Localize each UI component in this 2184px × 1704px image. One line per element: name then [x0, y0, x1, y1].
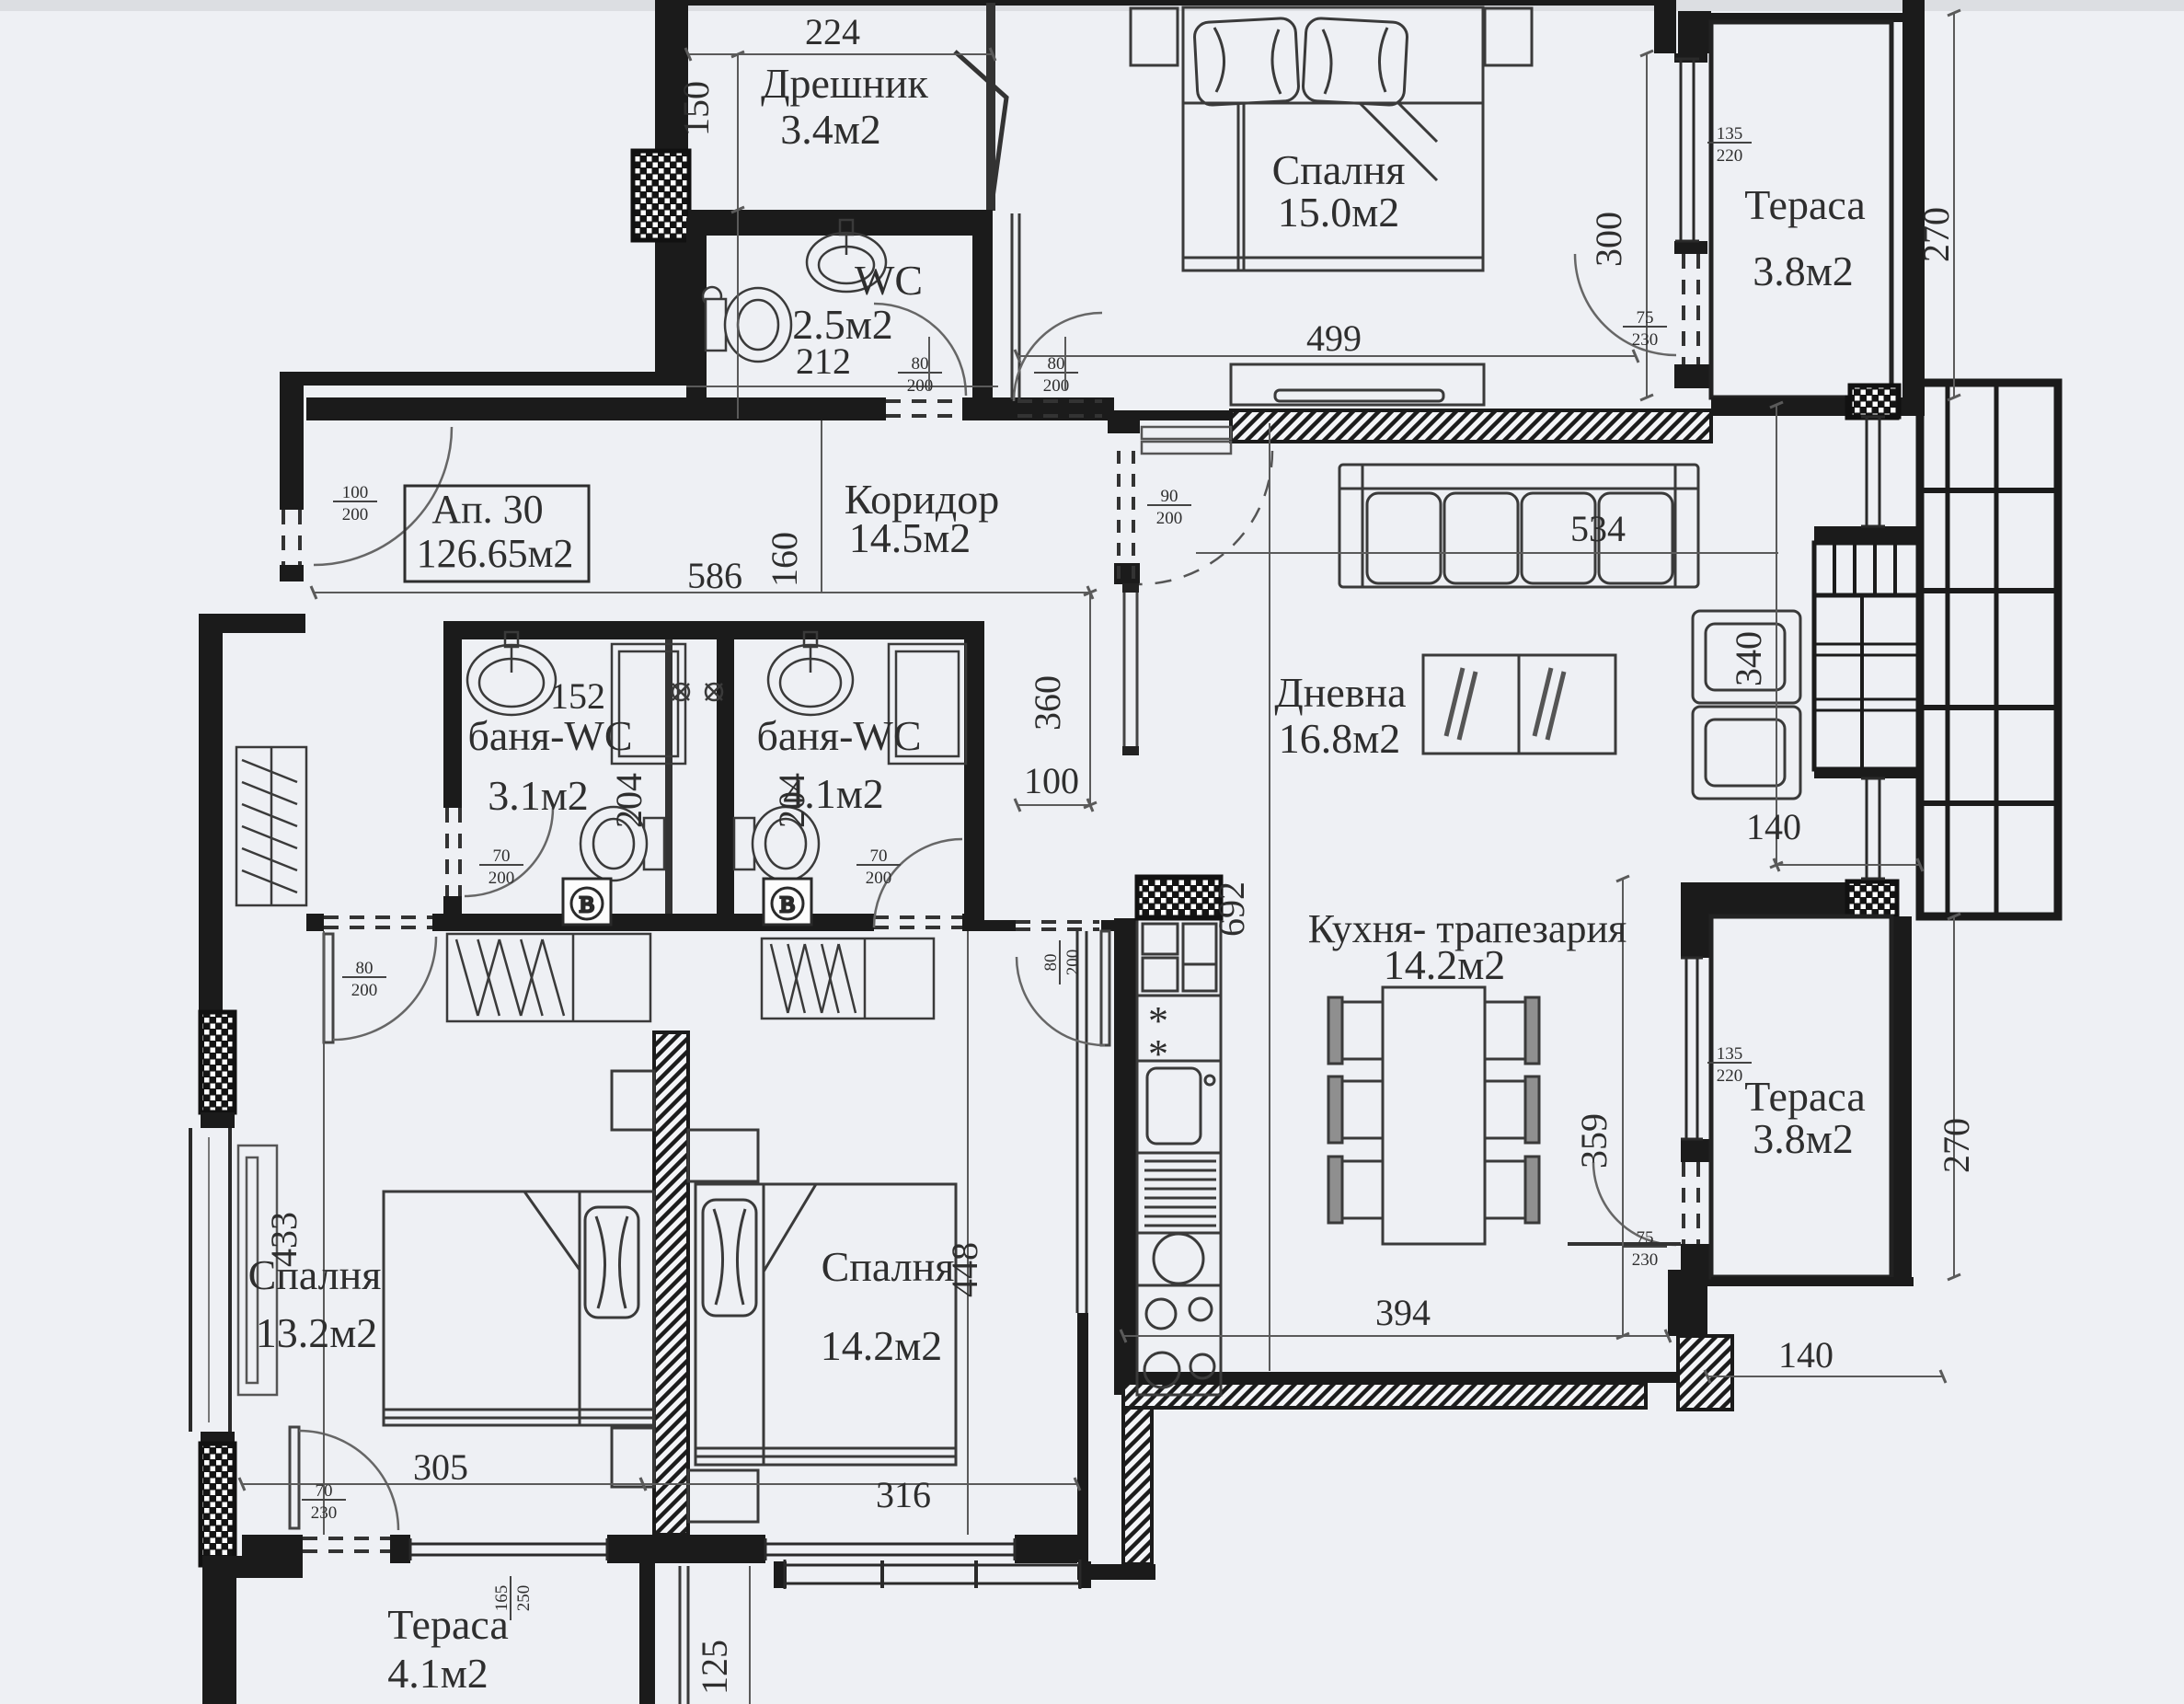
svg-text:126.65м2: 126.65м2 [417, 531, 574, 576]
svg-text:160: 160 [764, 532, 805, 587]
svg-text:13.2м2: 13.2м2 [256, 1309, 378, 1356]
svg-text:70: 70 [870, 846, 888, 866]
svg-text:200: 200 [1063, 950, 1083, 976]
svg-text:B: B [780, 893, 795, 917]
svg-text:75: 75 [1637, 1228, 1654, 1248]
svg-text:Тераса: Тераса [1744, 181, 1866, 228]
svg-text:230: 230 [311, 1503, 338, 1523]
svg-text:75: 75 [1637, 308, 1654, 328]
svg-text:340: 340 [1728, 631, 1769, 686]
svg-text:204: 204 [608, 773, 649, 828]
svg-text:359: 359 [1573, 1113, 1615, 1169]
svg-text:150: 150 [675, 81, 717, 136]
svg-text:80: 80 [1048, 354, 1065, 374]
svg-text:14.2м2: 14.2м2 [1384, 941, 1506, 988]
svg-text:3.4м2: 3.4м2 [780, 106, 881, 153]
svg-text:270: 270 [1915, 207, 1957, 262]
svg-text:212: 212 [796, 340, 851, 382]
svg-text:*: * [1148, 1031, 1168, 1077]
svg-text:80: 80 [912, 354, 929, 374]
svg-text:Дрешник: Дрешник [761, 60, 928, 107]
svg-text:125: 125 [694, 1640, 735, 1695]
svg-text:Дневна: Дневна [1274, 669, 1406, 716]
svg-text:баня-WC: баня-WC [756, 712, 921, 759]
svg-text:220: 220 [1717, 146, 1743, 166]
svg-text:70: 70 [493, 846, 511, 866]
svg-text:80: 80 [356, 959, 374, 978]
svg-text:Спалня: Спалня [1272, 146, 1406, 193]
svg-text:14.2м2: 14.2м2 [821, 1322, 943, 1369]
svg-text:204: 204 [771, 773, 812, 828]
svg-text:Тераса: Тераса [1744, 1073, 1866, 1120]
svg-text:3.8м2: 3.8м2 [1753, 1115, 1854, 1162]
svg-text:152: 152 [550, 675, 605, 717]
svg-text:586: 586 [687, 555, 742, 596]
svg-text:80: 80 [1041, 954, 1061, 972]
svg-text:3.1м2: 3.1м2 [488, 772, 589, 819]
svg-text:90: 90 [1161, 487, 1178, 506]
svg-text:499: 499 [1306, 317, 1362, 359]
svg-text:270: 270 [1936, 1118, 1977, 1173]
svg-text:692: 692 [1211, 881, 1252, 937]
svg-text:баня-WC: баня-WC [467, 712, 632, 759]
svg-text:70: 70 [316, 1481, 333, 1501]
svg-text:16.8м2: 16.8м2 [1279, 715, 1401, 762]
svg-text:316: 316 [876, 1474, 931, 1515]
svg-text:200: 200 [489, 869, 515, 888]
svg-text:250: 250 [514, 1585, 534, 1612]
svg-text:230: 230 [1632, 1250, 1659, 1270]
svg-text:200: 200 [1156, 509, 1183, 528]
svg-text:300: 300 [1588, 212, 1629, 267]
svg-text:224: 224 [805, 11, 860, 52]
svg-text:220: 220 [1717, 1066, 1743, 1086]
svg-text:100: 100 [342, 483, 369, 502]
svg-text:165: 165 [492, 1585, 512, 1612]
svg-text:Спалня: Спалня [822, 1243, 955, 1290]
svg-text:360: 360 [1027, 675, 1068, 731]
svg-text:305: 305 [413, 1446, 468, 1488]
svg-text:Спалня: Спалня [248, 1251, 382, 1298]
svg-text:140: 140 [1746, 806, 1801, 847]
svg-text:140: 140 [1778, 1334, 1833, 1376]
svg-text:200: 200 [866, 869, 892, 888]
svg-text:100: 100 [1024, 760, 1079, 801]
svg-text:WC: WC [855, 257, 923, 304]
svg-text:135: 135 [1717, 1044, 1743, 1064]
svg-text:B: B [580, 893, 594, 917]
svg-text:15.0м2: 15.0м2 [1278, 189, 1400, 236]
svg-text:394: 394 [1375, 1292, 1431, 1333]
svg-text:135: 135 [1717, 124, 1743, 144]
svg-text:Тераса: Тераса [387, 1601, 509, 1648]
svg-text:230: 230 [1632, 330, 1659, 350]
svg-text:3.8м2: 3.8м2 [1753, 248, 1854, 294]
svg-text:534: 534 [1570, 508, 1626, 549]
svg-text:200: 200 [351, 981, 378, 1000]
svg-text:4.1м2: 4.1м2 [387, 1650, 489, 1697]
svg-text:14.5м2: 14.5м2 [849, 514, 971, 561]
svg-text:200: 200 [342, 505, 369, 524]
svg-text:Ап. 30: Ап. 30 [431, 487, 543, 532]
